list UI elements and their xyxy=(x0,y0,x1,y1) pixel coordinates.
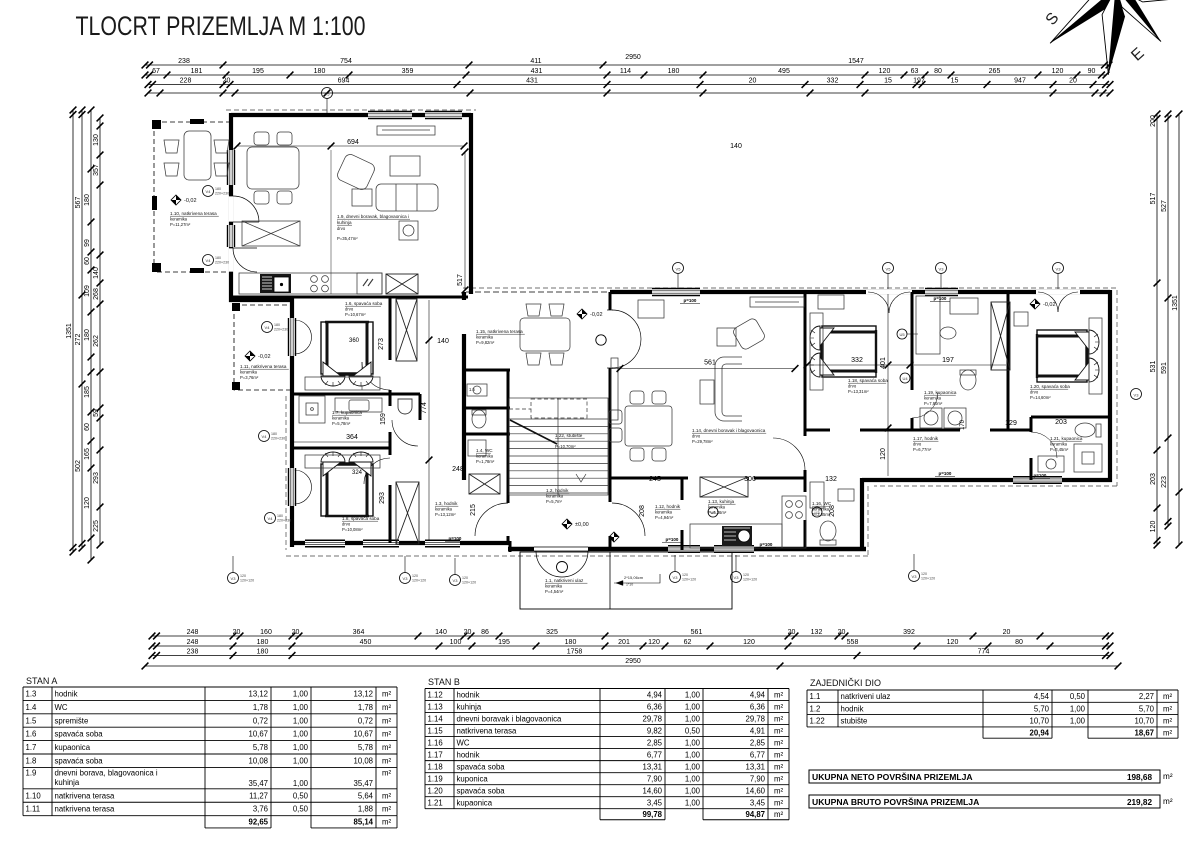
svg-text:1,00: 1,00 xyxy=(293,730,309,739)
svg-text:1.20: 1.20 xyxy=(428,786,444,795)
svg-text:248: 248 xyxy=(452,466,464,473)
svg-text:P=35,47m²: P=35,47m² xyxy=(337,236,358,241)
svg-text:170: 170 xyxy=(960,419,966,430)
svg-text:1.1, natkriveni ulaz: 1.1, natkriveni ulaz xyxy=(545,578,584,583)
svg-text:1,78: 1,78 xyxy=(253,703,268,712)
svg-text:1.14, dnevni boravak i blagova: 1.14, dnevni boravak i blagovaonica xyxy=(692,428,766,433)
svg-text:5,70: 5,70 xyxy=(1139,704,1155,713)
svg-text:67: 67 xyxy=(152,68,160,75)
svg-text:220×230: 220×230 xyxy=(277,519,291,523)
svg-text:140: 140 xyxy=(435,629,447,636)
svg-text:V4: V4 xyxy=(262,434,268,439)
svg-text:1.13: 1.13 xyxy=(428,702,443,711)
svg-text:p=100: p=100 xyxy=(939,471,952,476)
svg-text:P=6,77m²: P=6,77m² xyxy=(913,447,932,452)
svg-text:drvo: drvo xyxy=(913,442,922,447)
svg-text:531: 531 xyxy=(1150,361,1157,373)
svg-text:1.7: 1.7 xyxy=(26,743,37,752)
svg-text:99: 99 xyxy=(84,239,91,247)
svg-text:natkrivena terasa: natkrivena terasa xyxy=(457,726,517,735)
svg-text:P=10,67m²: P=10,67m² xyxy=(345,312,366,317)
svg-text:1.13, kuhinja: 1.13, kuhinja xyxy=(708,499,734,504)
svg-text:m²: m² xyxy=(382,690,391,699)
svg-text:180: 180 xyxy=(215,256,221,260)
svg-text:13,31: 13,31 xyxy=(642,762,662,771)
svg-text:160: 160 xyxy=(260,629,272,636)
svg-text:215: 215 xyxy=(470,504,477,516)
svg-text:359: 359 xyxy=(402,68,414,75)
svg-text:1.10: 1.10 xyxy=(26,791,42,800)
svg-text:1.12, hodnik: 1.12, hodnik xyxy=(655,504,681,509)
svg-text:1.17, hodnik: 1.17, hodnik xyxy=(913,436,939,441)
svg-text:keramika: keramika xyxy=(924,396,942,401)
svg-text:V3: V3 xyxy=(1056,267,1062,272)
svg-text:1.4: 1.4 xyxy=(26,703,38,712)
svg-text:754: 754 xyxy=(340,58,352,65)
svg-text:V3: V3 xyxy=(939,267,945,272)
svg-text:m²: m² xyxy=(774,738,783,747)
svg-text:197: 197 xyxy=(913,77,925,84)
svg-text:m²: m² xyxy=(382,757,391,766)
svg-text:V3: V3 xyxy=(912,574,918,579)
svg-text:100: 100 xyxy=(450,639,462,646)
svg-text:109: 109 xyxy=(84,285,91,297)
svg-text:10,08: 10,08 xyxy=(353,757,373,766)
svg-text:220×230: 220×230 xyxy=(271,437,285,441)
svg-text:kuhinja: kuhinja xyxy=(457,702,482,711)
svg-text:P=7,90m²: P=7,90m² xyxy=(924,401,943,406)
svg-text:kuhinja: kuhinja xyxy=(337,220,352,225)
svg-text:4,94: 4,94 xyxy=(647,690,663,699)
svg-text:m²: m² xyxy=(1163,772,1173,781)
svg-text:1547: 1547 xyxy=(848,58,864,65)
svg-text:5,78: 5,78 xyxy=(358,743,373,752)
svg-text:180: 180 xyxy=(84,329,91,341)
svg-text:6,36: 6,36 xyxy=(750,702,765,711)
svg-text:keramika: keramika xyxy=(240,370,258,375)
svg-text:197: 197 xyxy=(942,357,954,364)
svg-text:1.2: 1.2 xyxy=(810,704,821,713)
svg-text:1.21, kupaonica: 1.21, kupaonica xyxy=(1050,436,1083,441)
svg-text:hodnik: hodnik xyxy=(457,690,480,699)
svg-text:m²: m² xyxy=(774,690,783,699)
svg-text:-0,02: -0,02 xyxy=(258,354,271,360)
svg-text:85,14: 85,14 xyxy=(353,818,373,827)
svg-text:159: 159 xyxy=(380,413,387,425)
svg-text:120: 120 xyxy=(1150,521,1157,533)
svg-text:20: 20 xyxy=(1069,77,1077,84)
svg-text:UKUPNA NETO POVRŠINA PRIZEMLJA: UKUPNA NETO POVRŠINA PRIZEMLJA xyxy=(812,771,973,782)
svg-text:306: 306 xyxy=(744,476,756,483)
svg-text:1.3: 1.3 xyxy=(26,690,37,699)
svg-text:180: 180 xyxy=(314,68,326,75)
svg-text:561: 561 xyxy=(704,360,716,367)
svg-text:273: 273 xyxy=(378,338,385,350)
svg-text:181: 181 xyxy=(191,68,203,75)
svg-text:1.15: 1.15 xyxy=(428,726,444,735)
svg-text:1758: 1758 xyxy=(567,649,583,656)
svg-text:m²: m² xyxy=(1163,728,1172,737)
svg-text:10,08: 10,08 xyxy=(248,757,268,766)
svg-text:keramika: keramika xyxy=(1050,442,1068,447)
svg-text:P=4,94m²: P=4,94m² xyxy=(655,515,674,520)
svg-text:hodnik: hodnik xyxy=(841,704,864,713)
svg-text:220×230: 220×230 xyxy=(274,328,288,332)
svg-text:225: 225 xyxy=(93,520,100,532)
svg-text:120: 120 xyxy=(648,639,660,646)
svg-text:5,64: 5,64 xyxy=(358,791,374,800)
svg-text:p=100: p=100 xyxy=(449,536,462,541)
svg-text:120: 120 xyxy=(947,639,959,646)
svg-text:411: 411 xyxy=(530,58,541,65)
svg-text:20: 20 xyxy=(838,629,846,636)
svg-text:140: 140 xyxy=(93,267,100,279)
svg-text:132: 132 xyxy=(825,476,837,483)
svg-text:V5: V5 xyxy=(676,267,682,272)
svg-text:spremište: spremište xyxy=(55,716,89,725)
svg-text:UKUPNA BRUTO POVRŠINA PRIZEMLJ: UKUPNA BRUTO POVRŠINA PRIZEMLJA xyxy=(812,796,979,807)
svg-text:p=100: p=100 xyxy=(934,296,947,301)
svg-text:13,12: 13,12 xyxy=(353,690,373,699)
svg-text:130: 130 xyxy=(93,134,100,146)
svg-text:spavaća soba: spavaća soba xyxy=(55,730,104,739)
svg-text:m²: m² xyxy=(382,818,391,827)
svg-text:0,50: 0,50 xyxy=(1070,692,1086,701)
svg-text:p=100: p=100 xyxy=(684,298,697,303)
svg-text:694: 694 xyxy=(338,77,350,84)
svg-text:59: 59 xyxy=(93,409,100,417)
svg-text:drvo: drvo xyxy=(848,384,857,389)
svg-text:62: 62 xyxy=(684,639,692,646)
svg-text:86: 86 xyxy=(481,629,489,636)
svg-text:219,82: 219,82 xyxy=(1127,798,1152,807)
svg-text:517: 517 xyxy=(1150,193,1157,205)
svg-text:P=14,60m²: P=14,60m² xyxy=(1030,395,1051,400)
svg-text:V4: V4 xyxy=(268,516,274,521)
svg-text:268: 268 xyxy=(93,288,100,300)
svg-text:1,00: 1,00 xyxy=(293,743,309,752)
svg-text:p=100: p=100 xyxy=(1034,473,1047,478)
svg-text:m²: m² xyxy=(382,703,391,712)
svg-text:2,27: 2,27 xyxy=(1139,692,1154,701)
svg-text:120: 120 xyxy=(743,573,749,577)
svg-text:-0,02: -0,02 xyxy=(590,312,603,318)
svg-text:spavaća soba: spavaća soba xyxy=(457,786,506,795)
svg-text:m²: m² xyxy=(774,726,783,735)
svg-text:m²: m² xyxy=(382,730,391,739)
svg-text:6,36: 6,36 xyxy=(647,702,662,711)
svg-text:V4: V4 xyxy=(206,258,212,263)
svg-text:6,77: 6,77 xyxy=(750,750,765,759)
svg-text:114: 114 xyxy=(620,68,631,75)
svg-text:m²: m² xyxy=(774,774,783,783)
svg-text:80: 80 xyxy=(1015,639,1023,646)
svg-text:1.9: 1.9 xyxy=(26,768,37,777)
svg-text:11,27: 11,27 xyxy=(249,791,268,800)
svg-text:V3: V3 xyxy=(673,575,679,580)
svg-text:14,60: 14,60 xyxy=(745,786,765,795)
svg-text:U3: U3 xyxy=(814,510,820,515)
svg-text:keramika: keramika xyxy=(170,217,188,222)
svg-text:2950: 2950 xyxy=(625,54,641,61)
svg-text:V3: V3 xyxy=(734,575,740,580)
svg-text:1,00: 1,00 xyxy=(685,750,701,759)
svg-text:185: 185 xyxy=(84,386,91,398)
svg-text:P=5,7m²: P=5,7m² xyxy=(546,499,563,504)
svg-text:120: 120 xyxy=(880,448,887,460)
svg-text:4,54: 4,54 xyxy=(1034,692,1050,701)
svg-text:15: 15 xyxy=(951,77,959,84)
svg-text:92,65: 92,65 xyxy=(248,818,268,827)
svg-text:208: 208 xyxy=(639,505,646,517)
svg-text:129: 129 xyxy=(1005,420,1017,427)
svg-text:198,68: 198,68 xyxy=(1127,773,1152,782)
svg-text:1.10, natkrivena terasa: 1.10, natkrivena terasa xyxy=(170,211,217,216)
svg-text:P=4,54m²: P=4,54m² xyxy=(545,589,564,594)
svg-text:774: 774 xyxy=(421,402,428,414)
svg-text:165: 165 xyxy=(84,448,91,460)
svg-text:140: 140 xyxy=(437,338,449,345)
svg-text:1.18: 1.18 xyxy=(428,762,443,771)
svg-text:1.21: 1.21 xyxy=(428,798,443,807)
svg-text:20: 20 xyxy=(464,629,472,636)
svg-text:3,45: 3,45 xyxy=(750,798,766,807)
svg-text:238: 238 xyxy=(187,649,199,656)
svg-text:2,85: 2,85 xyxy=(750,738,766,747)
svg-text:99,78: 99,78 xyxy=(642,810,662,819)
svg-text:1,00: 1,00 xyxy=(293,757,309,766)
svg-text:120: 120 xyxy=(240,574,246,578)
svg-text:228: 228 xyxy=(180,77,192,84)
svg-text:dnevni boravak i blagovaonica: dnevni boravak i blagovaonica xyxy=(457,714,563,723)
svg-text:spavaća soba: spavaća soba xyxy=(457,762,506,771)
svg-text:P=10,08m²: P=10,08m² xyxy=(342,527,363,532)
svg-text:m²: m² xyxy=(774,750,783,759)
svg-text:drvo: drvo xyxy=(1030,390,1039,395)
svg-text:180: 180 xyxy=(277,514,283,518)
svg-text:223: 223 xyxy=(1161,476,1168,488)
svg-text:20,94: 20,94 xyxy=(1029,728,1049,737)
svg-text:180: 180 xyxy=(257,649,269,656)
svg-text:WC: WC xyxy=(457,738,470,747)
svg-text:P=10,70m²: P=10,70m² xyxy=(555,444,576,449)
svg-text:1,00: 1,00 xyxy=(1070,717,1086,726)
svg-text:keramika: keramika xyxy=(435,507,453,512)
svg-text:0,72: 0,72 xyxy=(358,716,373,725)
svg-text:1.16: 1.16 xyxy=(428,738,443,747)
svg-text:208: 208 xyxy=(829,505,836,517)
svg-text:245: 245 xyxy=(649,476,661,483)
svg-text:1,00: 1,00 xyxy=(1070,704,1086,713)
svg-text:1.19: 1.19 xyxy=(428,774,443,783)
svg-text:7,90: 7,90 xyxy=(647,774,663,783)
svg-text:U5: U5 xyxy=(899,332,905,337)
svg-text:29,78: 29,78 xyxy=(642,714,662,723)
svg-text:keramika: keramika xyxy=(655,510,673,515)
svg-text:V3: V3 xyxy=(1134,393,1140,398)
svg-text:60: 60 xyxy=(84,257,91,265)
svg-text:U4: U4 xyxy=(902,376,908,381)
svg-text:4,91: 4,91 xyxy=(750,726,765,735)
svg-text:1,00: 1,00 xyxy=(685,702,701,711)
svg-text:m²: m² xyxy=(774,762,783,771)
svg-text:293: 293 xyxy=(93,472,100,484)
svg-text:332: 332 xyxy=(851,357,863,364)
svg-text:120: 120 xyxy=(412,574,418,578)
svg-text:spavaća soba: spavaća soba xyxy=(55,757,104,766)
svg-text:STAN B: STAN B xyxy=(428,677,460,687)
svg-text:STAN A: STAN A xyxy=(26,676,57,686)
svg-text:120: 120 xyxy=(84,497,91,509)
svg-text:1.6, spavaća soba: 1.6, spavaća soba xyxy=(345,301,383,306)
svg-text:1,78: 1,78 xyxy=(358,703,373,712)
svg-text:63: 63 xyxy=(911,68,919,75)
svg-text:2,85: 2,85 xyxy=(647,738,663,747)
svg-text:m²: m² xyxy=(1163,717,1172,726)
svg-text:90: 90 xyxy=(1088,68,1096,75)
svg-text:1,00: 1,00 xyxy=(685,738,701,747)
svg-text:1,00: 1,00 xyxy=(685,786,701,795)
svg-text:120×120: 120×120 xyxy=(462,581,476,585)
svg-text:1,00: 1,00 xyxy=(293,703,309,712)
svg-text:120×120: 120×120 xyxy=(682,578,696,582)
svg-text:431: 431 xyxy=(526,77,538,84)
svg-text:120×120: 120×120 xyxy=(921,577,935,581)
svg-text:5,78: 5,78 xyxy=(253,743,268,752)
svg-text:6,77: 6,77 xyxy=(647,750,662,759)
svg-text:2*15,06cm: 2*15,06cm xyxy=(624,575,644,580)
svg-text:120: 120 xyxy=(743,639,755,646)
svg-text:V3: V3 xyxy=(403,576,409,581)
svg-text:hodnik: hodnik xyxy=(457,750,480,759)
svg-text:WC: WC xyxy=(55,703,68,712)
svg-text:natkrivena terasa: natkrivena terasa xyxy=(55,805,115,814)
svg-text:1.14: 1.14 xyxy=(428,714,444,723)
svg-text:p=100: p=100 xyxy=(760,542,773,547)
svg-text:3,45: 3,45 xyxy=(647,798,663,807)
svg-text:P=11,27m²: P=11,27m² xyxy=(170,222,191,227)
svg-text:10,70: 10,70 xyxy=(1134,717,1154,726)
svg-text:V4: V4 xyxy=(206,189,212,194)
svg-text:7,90: 7,90 xyxy=(750,774,766,783)
svg-text:203: 203 xyxy=(1150,473,1157,485)
svg-text:0,72: 0,72 xyxy=(253,716,268,725)
svg-text:1.11: 1.11 xyxy=(26,805,41,814)
svg-text:140: 140 xyxy=(730,143,742,150)
svg-text:1.3, hodnik: 1.3, hodnik xyxy=(435,501,458,506)
svg-text:kupaonica: kupaonica xyxy=(457,798,493,807)
svg-text:P=9,82m²: P=9,82m² xyxy=(476,340,495,345)
svg-text:m²: m² xyxy=(774,702,783,711)
svg-text:591: 591 xyxy=(1161,362,1168,374)
svg-text:1.8: 1.8 xyxy=(26,757,37,766)
svg-text:m²: m² xyxy=(382,768,391,777)
svg-text:m²: m² xyxy=(774,714,783,723)
svg-text:1.17: 1.17 xyxy=(428,750,443,759)
svg-text:1351: 1351 xyxy=(1172,295,1179,311)
svg-text:293: 293 xyxy=(379,492,386,504)
svg-text:m²: m² xyxy=(382,805,391,814)
svg-text:15: 15 xyxy=(884,77,892,84)
svg-text:keramika: keramika xyxy=(332,416,350,421)
svg-text:180: 180 xyxy=(274,323,280,327)
svg-text:keramika: keramika xyxy=(546,494,564,499)
svg-text:201: 201 xyxy=(618,639,630,646)
svg-text:195: 195 xyxy=(498,639,510,646)
svg-text:m²: m² xyxy=(1163,797,1173,806)
svg-text:567: 567 xyxy=(75,197,82,209)
svg-text:262: 262 xyxy=(93,335,100,347)
svg-text:kuhinja: kuhinja xyxy=(55,778,80,787)
svg-text:120: 120 xyxy=(682,573,688,577)
svg-text:1.12: 1.12 xyxy=(428,690,443,699)
svg-text:1.5: 1.5 xyxy=(469,387,475,392)
svg-text:V5: V5 xyxy=(325,92,331,97)
svg-text:1,00: 1,00 xyxy=(685,774,701,783)
svg-text:774: 774 xyxy=(978,649,990,656)
svg-text:20: 20 xyxy=(1003,629,1011,636)
svg-text:drvo: drvo xyxy=(345,307,354,312)
svg-text:keramika: keramika xyxy=(545,584,563,589)
svg-text:450: 450 xyxy=(360,639,372,646)
svg-text:180: 180 xyxy=(215,187,221,191)
svg-text:272: 272 xyxy=(75,334,82,346)
svg-text:13,12: 13,12 xyxy=(248,690,268,699)
svg-text:P=13,12m²: P=13,12m² xyxy=(435,512,456,517)
svg-text:keramika: keramika xyxy=(476,454,494,459)
svg-text:1*10: 1*10 xyxy=(626,583,633,587)
svg-text:3,76: 3,76 xyxy=(253,805,268,814)
svg-text:94,87: 94,87 xyxy=(745,810,765,819)
svg-text:180: 180 xyxy=(565,639,577,646)
svg-text:694: 694 xyxy=(347,139,359,146)
svg-text:1.15, natkrivena terasa: 1.15, natkrivena terasa xyxy=(476,329,523,334)
svg-text:10,67: 10,67 xyxy=(353,730,373,739)
svg-text:1.4, WC: 1.4, WC xyxy=(476,448,493,453)
svg-text:200: 200 xyxy=(1150,115,1157,127)
svg-text:1.5: 1.5 xyxy=(26,716,38,725)
svg-text:m²: m² xyxy=(382,743,391,752)
svg-text:ZAJEDNIČKI DIO: ZAJEDNIČKI DIO xyxy=(810,678,881,688)
svg-text:13,31: 13,31 xyxy=(745,762,765,771)
svg-text:20: 20 xyxy=(233,629,241,636)
svg-text:180: 180 xyxy=(668,68,680,75)
svg-text:drvo: drvo xyxy=(342,522,351,527)
svg-text:1.8, spavaća soba: 1.8, spavaća soba xyxy=(342,516,380,521)
svg-text:180: 180 xyxy=(84,194,91,206)
svg-text:±0,00: ±0,00 xyxy=(575,522,589,528)
svg-text:0,50: 0,50 xyxy=(293,791,309,800)
svg-text:1.6: 1.6 xyxy=(26,730,37,739)
svg-text:120: 120 xyxy=(1052,68,1064,75)
svg-text:1,00: 1,00 xyxy=(685,714,701,723)
svg-text:120: 120 xyxy=(879,68,891,75)
svg-text:m²: m² xyxy=(382,716,391,725)
svg-text:360: 360 xyxy=(349,338,360,344)
svg-text:80: 80 xyxy=(934,68,942,75)
svg-text:drvo: drvo xyxy=(337,226,346,231)
svg-text:2950: 2950 xyxy=(625,658,641,665)
svg-text:203: 203 xyxy=(1055,419,1067,426)
svg-text:120: 120 xyxy=(921,572,927,576)
svg-text:120×120: 120×120 xyxy=(743,578,757,582)
svg-text:120×120: 120×120 xyxy=(240,579,254,583)
svg-text:1.11, natkrivena terasa: 1.11, natkrivena terasa xyxy=(240,364,287,369)
svg-text:132: 132 xyxy=(811,629,823,636)
svg-text:V5: V5 xyxy=(886,267,892,272)
svg-text:10,70: 10,70 xyxy=(1029,717,1049,726)
svg-text:180: 180 xyxy=(271,432,277,436)
